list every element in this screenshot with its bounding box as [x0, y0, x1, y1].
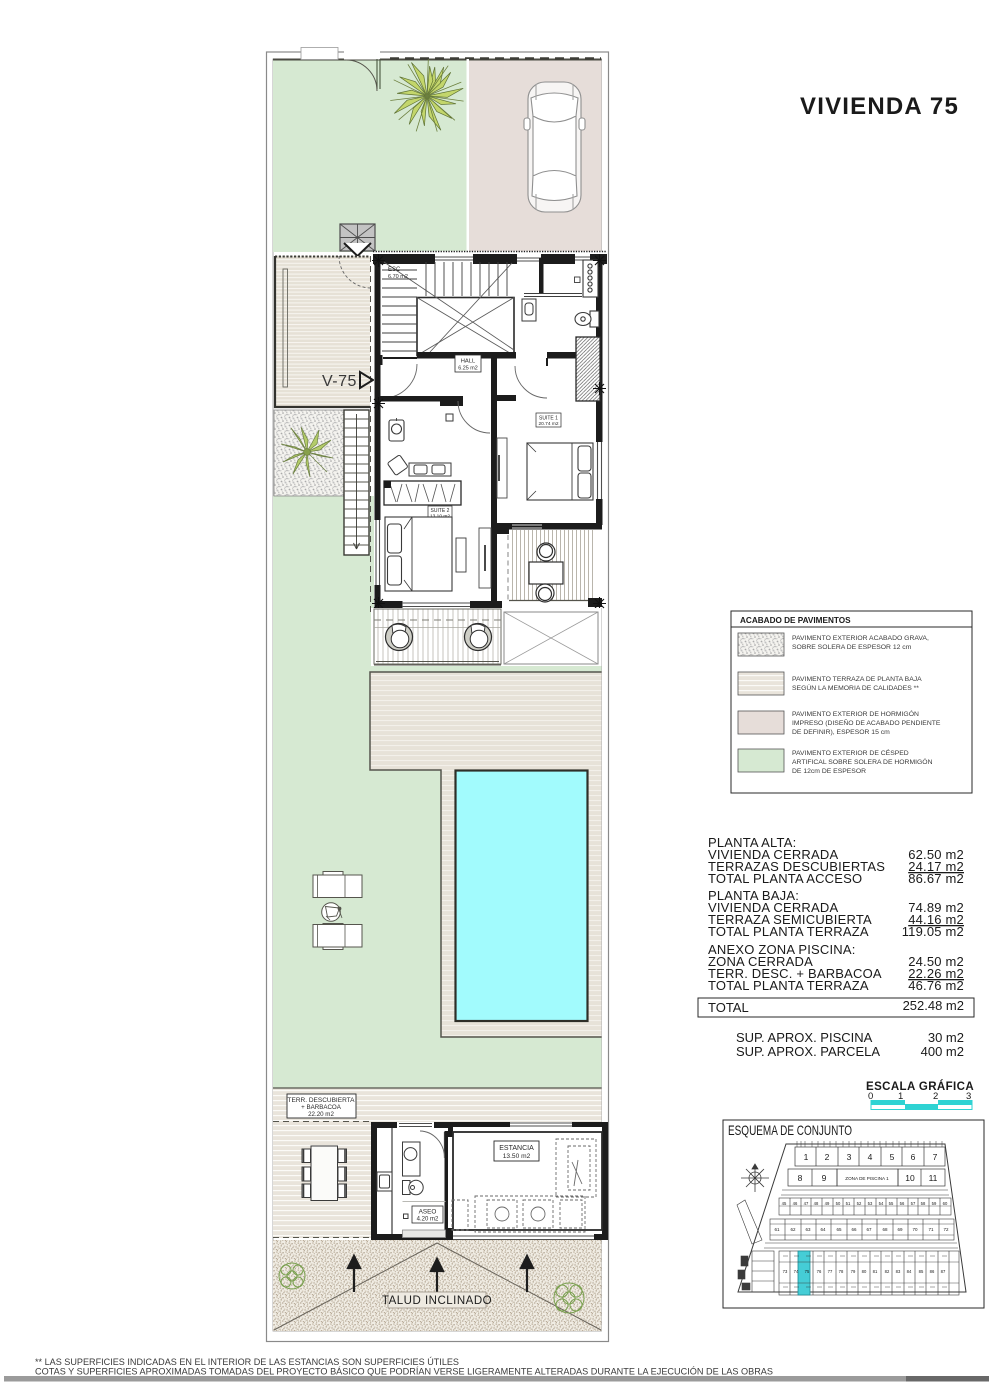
svg-text:66: 66: [851, 1227, 857, 1232]
svg-text:6.70 m2: 6.70 m2: [388, 274, 408, 280]
svg-text:46.76 m2: 46.76 m2: [908, 978, 964, 993]
svg-text:73: 73: [783, 1269, 788, 1274]
svg-text:3: 3: [847, 1152, 852, 1162]
svg-text:7: 7: [933, 1152, 938, 1162]
svg-text:SUITE 1: SUITE 1: [539, 416, 558, 422]
svg-text:55: 55: [889, 1201, 894, 1206]
svg-text:ESC: ESC: [388, 267, 401, 273]
svg-text:ACABADO DE PAVIMENTOS: ACABADO DE PAVIMENTOS: [740, 616, 851, 625]
svg-text:20.74 m2: 20.74 m2: [538, 421, 558, 427]
svg-text:64: 64: [820, 1227, 826, 1232]
svg-text:HALL: HALL: [461, 359, 476, 365]
svg-text:** LAS SUPERFICIES INDICADAS E: ** LAS SUPERFICIES INDICADAS EN EL INTER…: [35, 1357, 459, 1367]
svg-text:VIVIENDA 75: VIVIENDA 75: [800, 93, 959, 120]
svg-text:ARTIFICAL SOBRE SOLERA DE HORM: ARTIFICAL SOBRE SOLERA DE HORMIGÓN: [792, 757, 933, 766]
svg-text:62: 62: [790, 1227, 796, 1232]
svg-text:252.48 m2: 252.48 m2: [903, 998, 964, 1013]
svg-text:75: 75: [805, 1269, 810, 1274]
svg-text:61: 61: [774, 1227, 780, 1232]
svg-text:46: 46: [793, 1201, 798, 1206]
svg-text:TOTAL PLANTA ACCESO: TOTAL PLANTA ACCESO: [708, 871, 862, 886]
svg-text:84: 84: [907, 1269, 912, 1274]
svg-text:67: 67: [866, 1227, 872, 1232]
svg-text:60: 60: [943, 1201, 948, 1206]
svg-text:PAVIMENTO TERRAZA DE PLANTA BA: PAVIMENTO TERRAZA DE PLANTA BAJA: [792, 676, 922, 683]
svg-text:4: 4: [868, 1152, 873, 1162]
svg-text:52: 52: [857, 1201, 862, 1206]
svg-text:57: 57: [911, 1201, 916, 1206]
svg-text:400 m2: 400 m2: [921, 1044, 964, 1059]
svg-text:82: 82: [885, 1269, 890, 1274]
svg-text:6.25 m2: 6.25 m2: [458, 366, 477, 372]
svg-text:SUITE 2: SUITE 2: [431, 508, 450, 514]
svg-text:ESQUEMA DE CONJUNTO: ESQUEMA DE CONJUNTO: [728, 1122, 852, 1138]
svg-text:ASEO: ASEO: [419, 1209, 437, 1216]
svg-text:87: 87: [941, 1269, 946, 1274]
svg-text:SEGÚN LA MEMORIA DE CALIDADES: SEGÚN LA MEMORIA DE CALIDADES **: [792, 683, 919, 692]
svg-text:DE 12cm DE ESPESOR: DE 12cm DE ESPESOR: [792, 768, 866, 775]
svg-text:63: 63: [805, 1227, 811, 1232]
svg-text:9: 9: [822, 1173, 827, 1183]
svg-text:86: 86: [930, 1269, 935, 1274]
svg-text:45: 45: [782, 1201, 787, 1206]
svg-text:81: 81: [873, 1269, 878, 1274]
svg-text:70: 70: [912, 1227, 918, 1232]
svg-text:2: 2: [825, 1152, 830, 1162]
svg-text:68: 68: [882, 1227, 888, 1232]
svg-text:COTAS Y SUPERFICIES APROXIMADA: COTAS Y SUPERFICIES APROXIMADAS TOMADAS …: [35, 1367, 773, 1377]
svg-text:13.50 m2: 13.50 m2: [503, 1153, 531, 1160]
svg-text:ESTANCIA: ESTANCIA: [499, 1145, 534, 1152]
svg-text:5: 5: [890, 1152, 895, 1162]
svg-text:PAVIMENTO EXTERIOR ACABADO GRA: PAVIMENTO EXTERIOR ACABADO GRAVA,: [792, 635, 929, 642]
svg-text:+ BARBACOA: + BARBACOA: [301, 1104, 342, 1111]
svg-text:TERR. DESCUBIERTA: TERR. DESCUBIERTA: [288, 1097, 356, 1104]
svg-text:86.67 m2: 86.67 m2: [908, 871, 964, 886]
svg-text:51: 51: [846, 1201, 851, 1206]
svg-text:77: 77: [828, 1269, 833, 1274]
svg-text:TOTAL: TOTAL: [708, 1000, 749, 1015]
svg-text:30 m2: 30 m2: [928, 1030, 964, 1045]
svg-text:71: 71: [928, 1227, 934, 1232]
svg-text:SUP. APROX. PARCELA: SUP. APROX. PARCELA: [736, 1044, 880, 1059]
svg-text:PAVIMENTO EXTERIOR DE HORMIGÓN: PAVIMENTO EXTERIOR DE HORMIGÓN: [792, 709, 919, 718]
svg-text:119.05 m2: 119.05 m2: [902, 924, 964, 939]
svg-text:8: 8: [798, 1173, 803, 1183]
svg-text:TOTAL PLANTA TERRAZA: TOTAL PLANTA TERRAZA: [708, 924, 869, 939]
svg-text:ESCALA GRÁFICA: ESCALA GRÁFICA: [866, 1080, 974, 1093]
svg-text:58: 58: [921, 1201, 926, 1206]
svg-text:IMPRESO (DISEÑO DE ACABADO PEN: IMPRESO (DISEÑO DE ACABADO PENDIENTE: [792, 718, 941, 727]
svg-text:76: 76: [817, 1269, 822, 1274]
svg-text:59: 59: [932, 1201, 937, 1206]
svg-text:DE DEFINIR), ESPESOR 15 cm: DE DEFINIR), ESPESOR 15 cm: [792, 729, 890, 736]
svg-text:10: 10: [905, 1173, 915, 1183]
svg-text:6: 6: [911, 1152, 916, 1162]
svg-text:72: 72: [943, 1227, 949, 1232]
svg-text:83: 83: [896, 1269, 901, 1274]
svg-text:1: 1: [804, 1152, 809, 1162]
svg-text:11: 11: [929, 1173, 938, 1183]
svg-text:49: 49: [825, 1201, 830, 1206]
svg-text:TOTAL PLANTA TERRAZA: TOTAL PLANTA TERRAZA: [708, 978, 869, 993]
svg-text:V-75: V-75: [322, 373, 357, 390]
svg-text:79: 79: [851, 1269, 856, 1274]
svg-text:TALUD INCLINADO: TALUD INCLINADO: [382, 1295, 492, 1307]
svg-text:2: 2: [933, 1091, 938, 1102]
svg-text:SUP. APROX. PISCINA: SUP. APROX. PISCINA: [736, 1030, 873, 1045]
svg-text:53: 53: [868, 1201, 873, 1206]
svg-text:50: 50: [836, 1201, 841, 1206]
svg-text:48: 48: [814, 1201, 819, 1206]
svg-text:80: 80: [862, 1269, 867, 1274]
svg-text:69: 69: [897, 1227, 903, 1232]
svg-text:85: 85: [919, 1269, 924, 1274]
svg-text:PAVIMENTO EXTERIOR DE CÉSPED: PAVIMENTO EXTERIOR DE CÉSPED: [792, 748, 909, 757]
svg-text:65: 65: [836, 1227, 842, 1232]
svg-text:22.20 m2: 22.20 m2: [308, 1111, 334, 1118]
svg-text:56: 56: [900, 1201, 905, 1206]
svg-text:74: 74: [794, 1269, 799, 1274]
svg-text:SOBRE SOLERA DE ESPESOR 12 cm: SOBRE SOLERA DE ESPESOR 12 cm: [792, 644, 912, 651]
svg-text:78: 78: [839, 1269, 844, 1274]
svg-text:47: 47: [804, 1201, 809, 1206]
svg-text:ZONA DE PISCINA 1: ZONA DE PISCINA 1: [845, 1176, 889, 1181]
svg-text:54: 54: [879, 1201, 884, 1206]
svg-text:4.20 m2: 4.20 m2: [417, 1217, 439, 1223]
